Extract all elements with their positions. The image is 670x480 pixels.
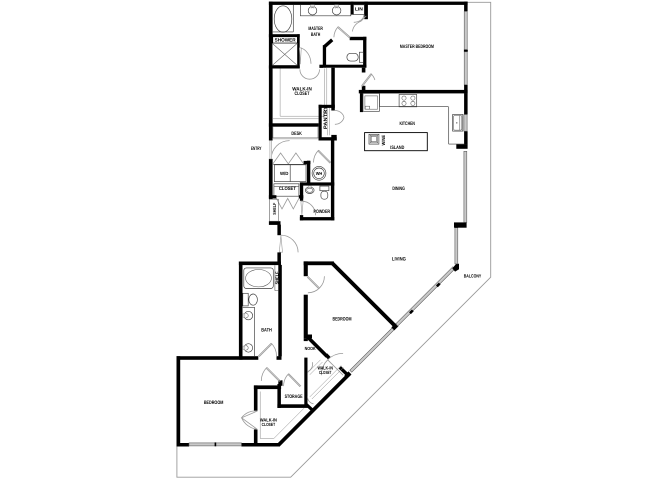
svg-text:CLOSET: CLOSET <box>279 186 296 191</box>
svg-text:BATH: BATH <box>261 327 272 333</box>
svg-text:KITCHEN: KITCHEN <box>399 121 415 127</box>
svg-text:LIN: LIN <box>355 6 364 11</box>
svg-text:ISLAND: ISLAND <box>390 145 404 151</box>
svg-text:STORAGE: STORAGE <box>285 394 303 400</box>
svg-text:POWDER: POWDER <box>314 209 331 215</box>
svg-text:CLOSET: CLOSET <box>295 91 310 97</box>
svg-text:CLOSET: CLOSET <box>319 370 332 375</box>
svg-text:SHELF: SHELF <box>275 271 280 284</box>
svg-text:DINING: DINING <box>392 186 405 192</box>
svg-text:SHELF: SHELF <box>272 202 277 214</box>
svg-text:W/D: W/D <box>280 171 289 176</box>
svg-text:WINE: WINE <box>381 135 386 146</box>
svg-text:PANTRY: PANTRY <box>323 105 329 129</box>
svg-text:LIVING: LIVING <box>392 257 406 263</box>
svg-text:MASTER BEDROOM: MASTER BEDROOM <box>400 44 434 50</box>
svg-text:WH: WH <box>316 171 323 176</box>
svg-text:BATH: BATH <box>311 32 321 38</box>
svg-text:BALCONY: BALCONY <box>464 273 482 278</box>
svg-text:ENTRY: ENTRY <box>251 146 262 152</box>
svg-text:BEDROOM: BEDROOM <box>204 400 224 406</box>
svg-text:DESK: DESK <box>291 131 302 137</box>
svg-text:BEDROOM: BEDROOM <box>333 317 352 323</box>
svg-text:CLOSET: CLOSET <box>262 422 276 427</box>
svg-text:NOOK: NOOK <box>305 346 317 351</box>
svg-text:SHOWER: SHOWER <box>275 38 297 44</box>
